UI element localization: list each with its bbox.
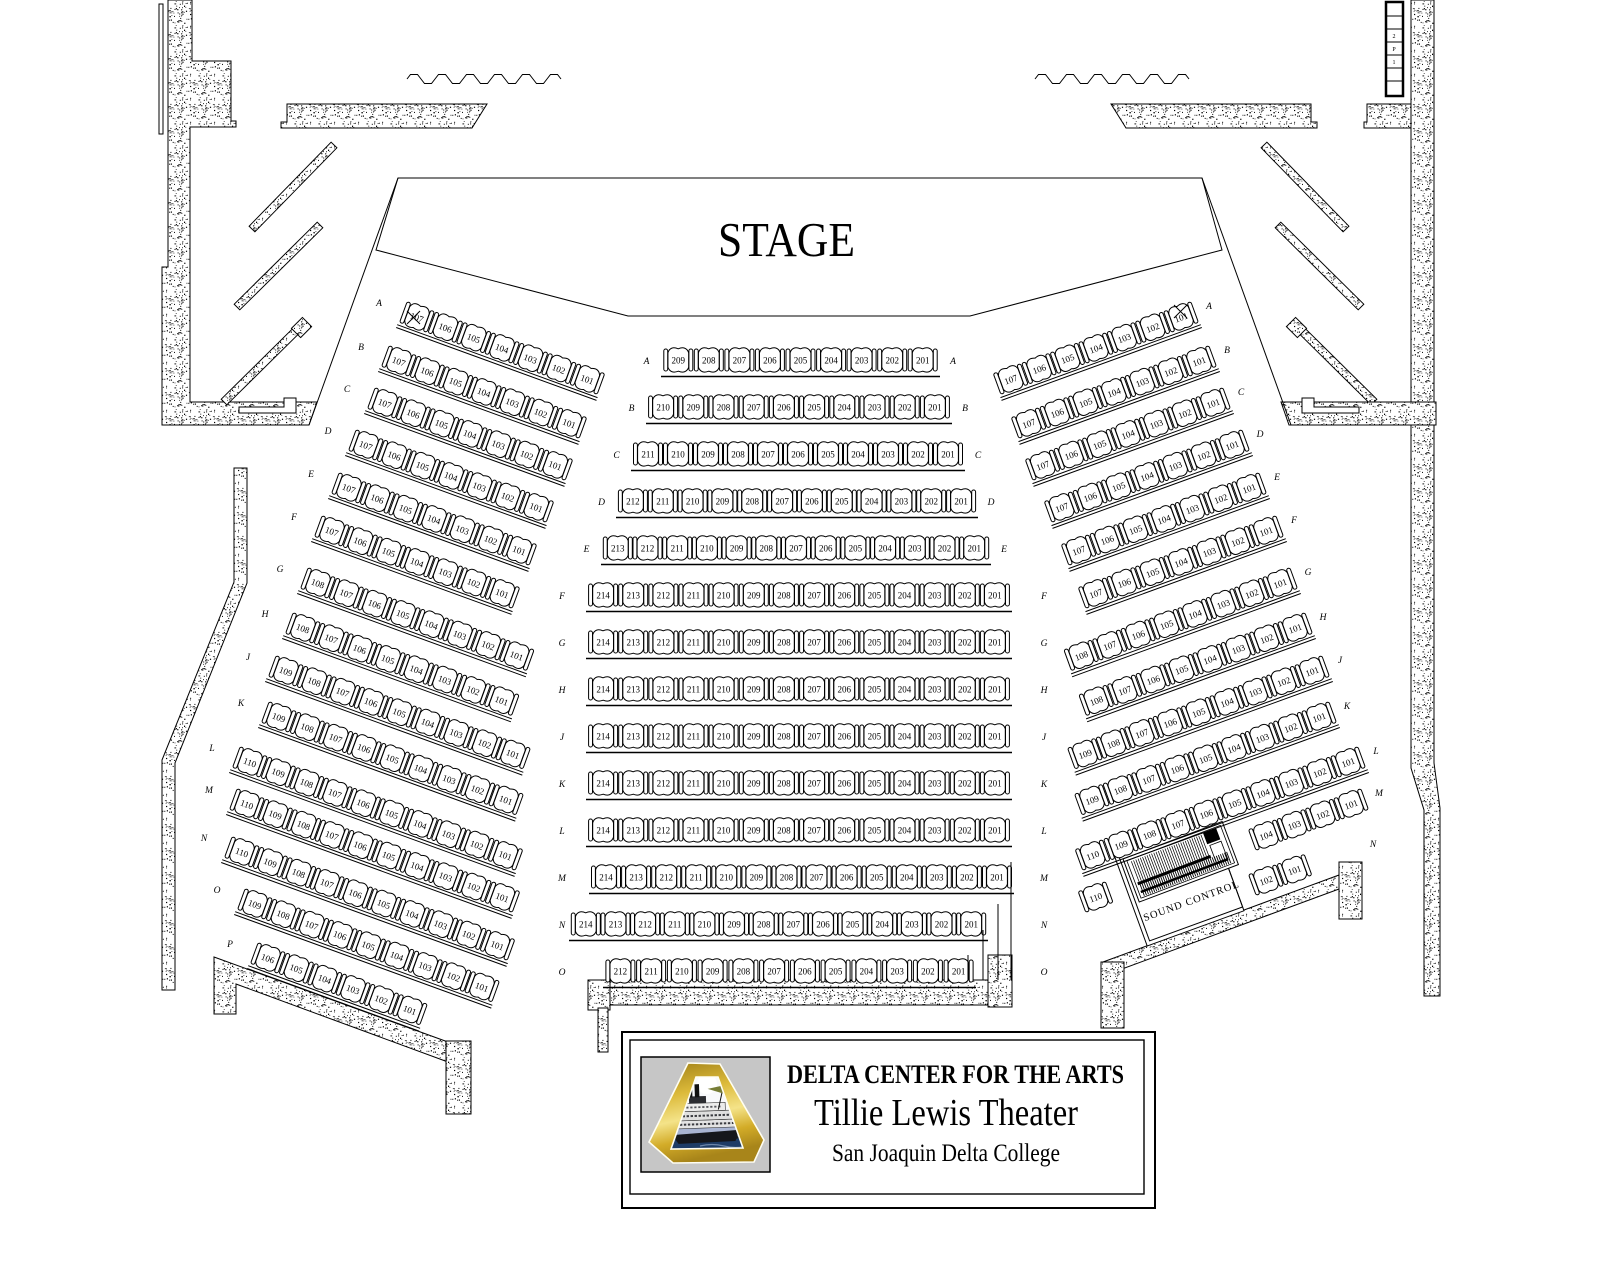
svg-text:205: 205: [807, 403, 821, 413]
svg-text:201: 201: [967, 544, 981, 554]
svg-text:204: 204: [878, 544, 892, 554]
svg-text:201: 201: [952, 967, 966, 977]
svg-text:210: 210: [717, 685, 731, 695]
svg-text:M: M: [1374, 789, 1384, 799]
svg-text:207: 207: [807, 779, 821, 789]
svg-text:210: 210: [717, 732, 731, 742]
svg-text:206: 206: [798, 967, 812, 977]
svg-text:F: F: [1290, 516, 1297, 526]
svg-text:E: E: [1273, 473, 1280, 483]
svg-text:B: B: [962, 404, 968, 414]
svg-text:201: 201: [988, 591, 1002, 601]
svg-text:210: 210: [717, 638, 731, 648]
svg-text:211: 211: [687, 826, 700, 836]
svg-text:205: 205: [868, 826, 882, 836]
svg-text:204: 204: [865, 497, 879, 507]
svg-text:213: 213: [626, 826, 640, 836]
svg-text:207: 207: [747, 403, 761, 413]
svg-text:205: 205: [846, 920, 860, 930]
svg-text:K: K: [237, 699, 245, 709]
svg-text:208: 208: [760, 544, 774, 554]
svg-text:204: 204: [900, 873, 914, 883]
svg-text:204: 204: [851, 450, 865, 460]
svg-text:204: 204: [824, 356, 838, 366]
svg-text:207: 207: [807, 826, 821, 836]
svg-text:202: 202: [958, 591, 972, 601]
svg-text:A: A: [949, 357, 956, 367]
svg-text:210: 210: [656, 403, 670, 413]
svg-text:201: 201: [988, 826, 1002, 836]
svg-text:L: L: [1040, 827, 1046, 837]
svg-text:O: O: [214, 886, 221, 896]
svg-text:201: 201: [964, 920, 978, 930]
svg-text:F: F: [290, 513, 297, 523]
svg-text:208: 208: [757, 920, 771, 930]
svg-text:214: 214: [599, 873, 613, 883]
svg-text:DELTA CENTER FOR THE ARTS: DELTA CENTER FOR THE ARTS: [787, 1060, 1124, 1089]
svg-text:209: 209: [747, 779, 761, 789]
svg-text:F: F: [1040, 592, 1047, 602]
svg-text:209: 209: [747, 638, 761, 648]
svg-text:209: 209: [747, 826, 761, 836]
svg-text:214: 214: [596, 638, 610, 648]
svg-text:203: 203: [905, 920, 919, 930]
svg-text:211: 211: [656, 497, 669, 507]
svg-text:207: 207: [807, 685, 821, 695]
svg-text:H: H: [558, 686, 567, 696]
svg-text:209: 209: [747, 732, 761, 742]
svg-text:204: 204: [898, 685, 912, 695]
svg-text:D: D: [987, 498, 995, 508]
svg-text:B: B: [358, 343, 364, 353]
svg-text:206: 206: [805, 497, 819, 507]
svg-text:C: C: [613, 451, 620, 461]
svg-text:207: 207: [767, 967, 781, 977]
svg-text:B: B: [629, 404, 635, 414]
svg-text:208: 208: [777, 732, 791, 742]
svg-text:G: G: [1305, 568, 1312, 578]
svg-text:213: 213: [609, 920, 623, 930]
svg-text:C: C: [1238, 388, 1245, 398]
svg-text:214: 214: [596, 779, 610, 789]
svg-text:205: 205: [849, 544, 863, 554]
svg-text:P: P: [226, 940, 233, 950]
svg-text:204: 204: [875, 920, 889, 930]
svg-text:208: 208: [745, 497, 759, 507]
svg-text:204: 204: [898, 638, 912, 648]
svg-text:214: 214: [596, 826, 610, 836]
svg-text:O: O: [1041, 968, 1048, 978]
svg-text:209: 209: [730, 544, 744, 554]
svg-text:N: N: [1040, 921, 1048, 931]
svg-text:213: 213: [611, 544, 625, 554]
svg-text:210: 210: [720, 873, 734, 883]
svg-text:G: G: [559, 639, 566, 649]
svg-text:205: 205: [868, 591, 882, 601]
svg-text:201: 201: [988, 638, 1002, 648]
svg-text:212: 212: [657, 826, 671, 836]
svg-text:211: 211: [668, 920, 681, 930]
svg-text:204: 204: [898, 826, 912, 836]
svg-text:206: 206: [837, 638, 851, 648]
svg-text:K: K: [1040, 780, 1048, 790]
svg-text:209: 209: [747, 685, 761, 695]
svg-text:205: 205: [835, 497, 849, 507]
svg-text:210: 210: [700, 544, 714, 554]
svg-text:206: 206: [837, 779, 851, 789]
svg-text:203: 203: [868, 403, 882, 413]
svg-text:K: K: [1343, 702, 1351, 712]
svg-text:K: K: [558, 780, 566, 790]
svg-text:H: H: [1319, 613, 1328, 623]
svg-text:214: 214: [596, 685, 610, 695]
svg-text:210: 210: [717, 591, 731, 601]
svg-text:210: 210: [686, 497, 700, 507]
svg-text:209: 209: [706, 967, 720, 977]
svg-text:206: 206: [840, 873, 854, 883]
svg-text:204: 204: [898, 591, 912, 601]
svg-text:202: 202: [885, 356, 899, 366]
svg-text:201: 201: [988, 732, 1002, 742]
svg-text:C: C: [975, 451, 982, 461]
svg-text:O: O: [559, 968, 566, 978]
svg-text:201: 201: [916, 356, 930, 366]
svg-text:D: D: [597, 498, 605, 508]
svg-text:213: 213: [626, 779, 640, 789]
svg-text:G: G: [277, 565, 284, 575]
svg-text:211: 211: [641, 450, 654, 460]
svg-text:213: 213: [626, 685, 640, 695]
svg-text:206: 206: [816, 920, 830, 930]
svg-text:E: E: [307, 470, 314, 480]
svg-text:1: 1: [1393, 60, 1396, 66]
svg-text:212: 212: [657, 732, 671, 742]
svg-text:213: 213: [626, 638, 640, 648]
svg-text:M: M: [557, 874, 567, 884]
svg-text:211: 211: [645, 967, 658, 977]
svg-text:206: 206: [791, 450, 805, 460]
svg-text:201: 201: [928, 403, 942, 413]
svg-text:212: 212: [659, 873, 673, 883]
svg-text:208: 208: [777, 826, 791, 836]
svg-text:211: 211: [671, 544, 684, 554]
svg-text:209: 209: [716, 497, 730, 507]
svg-text:203: 203: [890, 967, 904, 977]
svg-text:212: 212: [638, 920, 652, 930]
svg-text:A: A: [1205, 302, 1212, 312]
svg-text:208: 208: [717, 403, 731, 413]
svg-text:214: 214: [596, 591, 610, 601]
svg-text:214: 214: [596, 732, 610, 742]
svg-text:207: 207: [807, 732, 821, 742]
svg-text:202: 202: [958, 685, 972, 695]
svg-text:201: 201: [941, 450, 955, 460]
svg-text:207: 207: [775, 497, 789, 507]
svg-text:211: 211: [687, 732, 700, 742]
svg-text:205: 205: [870, 873, 884, 883]
svg-text:205: 205: [868, 685, 882, 695]
svg-text:E: E: [583, 545, 590, 555]
svg-text:205: 205: [829, 967, 843, 977]
svg-text:L: L: [208, 744, 214, 754]
svg-text:204: 204: [898, 732, 912, 742]
svg-text:N: N: [200, 834, 208, 844]
svg-text:212: 212: [641, 544, 655, 554]
svg-text:205: 205: [821, 450, 835, 460]
svg-text:211: 211: [690, 873, 703, 883]
svg-text:205: 205: [868, 779, 882, 789]
svg-text:207: 207: [807, 638, 821, 648]
svg-text:202: 202: [960, 873, 974, 883]
svg-text:211: 211: [687, 685, 700, 695]
svg-text:204: 204: [898, 779, 912, 789]
svg-text:214: 214: [579, 920, 593, 930]
svg-text:203: 203: [908, 544, 922, 554]
svg-text:202: 202: [935, 920, 949, 930]
svg-text:A: A: [643, 357, 650, 367]
svg-text:203: 203: [928, 591, 942, 601]
svg-text:202: 202: [924, 497, 938, 507]
svg-text:208: 208: [777, 779, 791, 789]
svg-text:Tillie Lewis Theater: Tillie Lewis Theater: [814, 1092, 1078, 1134]
svg-text:209: 209: [727, 920, 741, 930]
svg-text:205: 205: [868, 732, 882, 742]
svg-text:211: 211: [687, 591, 700, 601]
svg-text:202: 202: [958, 826, 972, 836]
svg-text:203: 203: [928, 826, 942, 836]
svg-text:F: F: [558, 592, 565, 602]
svg-text:205: 205: [868, 638, 882, 648]
svg-text:G: G: [1041, 639, 1048, 649]
svg-text:203: 203: [928, 685, 942, 695]
svg-text:N: N: [558, 921, 566, 931]
svg-text:211: 211: [687, 779, 700, 789]
svg-text:L: L: [1372, 747, 1378, 757]
svg-text:204: 204: [860, 967, 874, 977]
svg-text:203: 203: [895, 497, 909, 507]
svg-text:N: N: [1369, 840, 1377, 850]
svg-text:208: 208: [702, 356, 716, 366]
svg-text:C: C: [344, 385, 351, 395]
svg-text:203: 203: [928, 732, 942, 742]
svg-text:L: L: [558, 827, 564, 837]
svg-text:206: 206: [763, 356, 777, 366]
svg-text:212: 212: [657, 779, 671, 789]
svg-text:210: 210: [717, 779, 731, 789]
svg-text:E: E: [1000, 545, 1007, 555]
svg-text:203: 203: [855, 356, 869, 366]
svg-text:212: 212: [657, 638, 671, 648]
svg-text:209: 209: [672, 356, 686, 366]
svg-text:2: 2: [1393, 34, 1396, 40]
svg-text:206: 206: [837, 685, 851, 695]
svg-text:H: H: [261, 610, 270, 620]
svg-text:209: 209: [750, 873, 764, 883]
svg-text:211: 211: [687, 638, 700, 648]
svg-text:206: 206: [819, 544, 833, 554]
svg-text:207: 207: [807, 591, 821, 601]
svg-text:206: 206: [777, 403, 791, 413]
svg-text:212: 212: [626, 497, 640, 507]
svg-text:205: 205: [794, 356, 808, 366]
svg-text:201: 201: [954, 497, 968, 507]
svg-text:203: 203: [930, 873, 944, 883]
svg-text:210: 210: [675, 967, 689, 977]
svg-text:208: 208: [777, 591, 791, 601]
svg-text:209: 209: [701, 450, 715, 460]
svg-text:B: B: [1224, 346, 1230, 356]
svg-text:203: 203: [928, 638, 942, 648]
svg-text:209: 209: [747, 591, 761, 601]
svg-text:208: 208: [737, 967, 751, 977]
svg-text:210: 210: [698, 920, 712, 930]
svg-text:212: 212: [657, 685, 671, 695]
svg-text:A: A: [375, 299, 382, 309]
svg-text:208: 208: [777, 638, 791, 648]
svg-text:207: 207: [810, 873, 824, 883]
svg-text:207: 207: [787, 920, 801, 930]
svg-text:202: 202: [921, 967, 935, 977]
svg-text:202: 202: [938, 544, 952, 554]
svg-text:209: 209: [687, 403, 701, 413]
svg-text:202: 202: [958, 638, 972, 648]
svg-text:201: 201: [988, 685, 1002, 695]
svg-text:M: M: [204, 786, 214, 796]
svg-text:206: 206: [837, 826, 851, 836]
svg-text:208: 208: [731, 450, 745, 460]
svg-text:207: 207: [761, 450, 775, 460]
svg-text:H: H: [1040, 686, 1049, 696]
svg-text:213: 213: [626, 591, 640, 601]
svg-text:203: 203: [881, 450, 895, 460]
svg-text:201: 201: [988, 779, 1002, 789]
svg-text:207: 207: [733, 356, 747, 366]
svg-text:STAGE: STAGE: [718, 212, 855, 267]
svg-text:212: 212: [657, 591, 671, 601]
svg-text:208: 208: [777, 685, 791, 695]
svg-text:206: 206: [837, 732, 851, 742]
svg-text:207: 207: [789, 544, 803, 554]
svg-text:210: 210: [671, 450, 685, 460]
svg-text:D: D: [1256, 430, 1264, 440]
svg-text:201: 201: [990, 873, 1004, 883]
svg-text:203: 203: [928, 779, 942, 789]
svg-text:202: 202: [958, 732, 972, 742]
svg-text:210: 210: [717, 826, 731, 836]
svg-text:202: 202: [898, 403, 912, 413]
svg-text:D: D: [324, 427, 332, 437]
svg-text:202: 202: [911, 450, 925, 460]
svg-text:213: 213: [629, 873, 643, 883]
svg-text:204: 204: [838, 403, 852, 413]
svg-text:213: 213: [626, 732, 640, 742]
svg-text:208: 208: [780, 873, 794, 883]
svg-text:212: 212: [614, 967, 628, 977]
svg-text:San Joaquin Delta College: San Joaquin Delta College: [832, 1140, 1060, 1167]
svg-text:202: 202: [958, 779, 972, 789]
svg-text:M: M: [1039, 874, 1049, 884]
svg-text:206: 206: [837, 591, 851, 601]
